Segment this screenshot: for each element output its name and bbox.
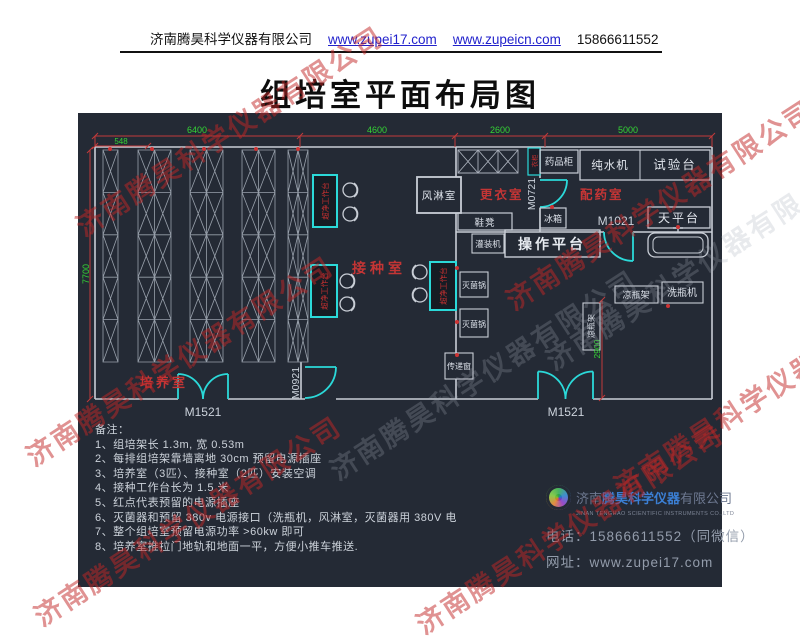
- note-item-1: 1、组培架长 1.3m, 宽 0.53m: [95, 438, 525, 453]
- shoe-bench-label: 鞋凳: [474, 217, 495, 229]
- medicine-cabinet: 药品柜: [540, 150, 578, 173]
- clean-bench-label: 超净工作台: [319, 272, 329, 310]
- door-m1021: [604, 232, 633, 261]
- note-item-7: 7、整个组培室预留电源功率 >60kw 即可: [95, 525, 525, 540]
- bottle-rack-label: 凉瓶架: [622, 289, 649, 300]
- dim-5000: 5000: [618, 125, 638, 135]
- test-bench-label: 试验台: [653, 157, 697, 172]
- filling-machine: 灌装机: [472, 234, 504, 253]
- sterilizer-label: 灭菌锅: [462, 280, 486, 290]
- dim-7700: 7700: [81, 264, 91, 284]
- fridge-label: 冰箱: [544, 213, 562, 224]
- door-m0721: [540, 180, 567, 207]
- wardrobe-label: 衣柜: [530, 154, 539, 168]
- header-link-zupeicn[interactable]: www.zupeicn.com: [453, 32, 561, 47]
- sterilizer-1: 灭菌锅: [460, 272, 488, 297]
- door-label-m1521-left: M1521: [185, 405, 222, 419]
- note-item-8: 8、培养室推拉门地轨和地面一平，方便小推车推送.: [95, 540, 525, 555]
- page: 济南腾昊科学仪器有限公司 www.zupei17.com www.zupeicn…: [0, 0, 800, 600]
- door-m1521-right: [538, 372, 593, 400]
- footer-company-prefix: 济南: [576, 491, 602, 506]
- footer-phone-value: 15866611552（同微信）: [590, 529, 755, 544]
- fridge: 冰箱: [540, 208, 566, 228]
- dim-548: 548: [114, 137, 128, 146]
- door-label-m1021: M1021: [598, 214, 635, 228]
- footer-phone-label: 电话：: [546, 529, 590, 544]
- bottle-washer: 洗瓶机: [662, 282, 703, 303]
- notes-title: 备注：: [95, 423, 525, 438]
- shoe-bench: 鞋凳: [458, 213, 512, 230]
- footer-web-line: 网址：www.zupei17.com: [546, 551, 716, 571]
- footer-company-brand: 腾昊科学仪器: [602, 491, 680, 506]
- company-logo-icon: [546, 485, 571, 510]
- footer-company-name: 济南腾昊科学仪器有限公司: [576, 488, 732, 507]
- footer: 济南腾昊科学仪器有限公司 JINAN TENGHAO SCIENTIFIC IN…: [546, 485, 716, 571]
- culture-racks: [103, 150, 308, 362]
- door-label-m0921: M0921: [290, 367, 302, 399]
- pure-water-label: 纯水机: [591, 158, 629, 172]
- note-item-6: 6、灭菌器和预留 380v 电源接口（洗瓶机，风淋室，灭菌器用 380V 电: [95, 511, 525, 526]
- header-phone: 15866611552: [577, 32, 659, 47]
- bottle-rack-horizontal: 凉瓶架: [615, 286, 658, 303]
- page-title: 组培室平面布局图: [0, 70, 800, 115]
- dim-6400: 6400: [187, 125, 207, 135]
- operation-platform: 操作平台: [505, 230, 600, 257]
- footer-web-label: 网址：: [546, 555, 590, 570]
- air-shower-label: 风淋室: [422, 189, 457, 202]
- rack-lines: [103, 150, 308, 362]
- room-label-culture: 培养室: [140, 375, 188, 390]
- footer-company-suffix: 有限公司: [680, 491, 732, 506]
- header-company: 济南腾昊科学仪器有限公司: [150, 28, 312, 48]
- air-shower: 风淋室: [417, 177, 461, 213]
- clean-bench-label: 超净工作台: [438, 267, 448, 305]
- notes: 备注： 1、组培架长 1.3m, 宽 0.53m 2、每排组培架靠墙离地 30c…: [95, 423, 525, 554]
- clean-bench-3: 超净工作台: [430, 262, 456, 310]
- footer-phone-line: 电话：15866611552（同微信）: [546, 525, 716, 545]
- dim-4600: 4600: [367, 125, 387, 135]
- header-link-zupei17[interactable]: www.zupei17.com: [328, 32, 437, 47]
- dim-2600: 2600: [490, 125, 510, 135]
- bottle-rack-label: 凉瓶架: [586, 314, 596, 338]
- door-label-m0721: M0721: [526, 178, 538, 210]
- clean-bench-label: 超净工作台: [320, 182, 330, 220]
- doors: [178, 180, 633, 399]
- transfer-window-label: 传递窗: [447, 361, 471, 371]
- sterilizer-label: 灭菌锅: [462, 319, 486, 329]
- note-item-5: 5、红点代表预留的电源插座: [95, 496, 525, 511]
- operation-platform-label: 操作平台: [518, 236, 586, 252]
- room-label-changing: 更衣室: [480, 187, 524, 202]
- footer-company-en: JINAN TENGHAO SCIENTIFIC INSTRUMENTS CO.…: [576, 511, 716, 517]
- note-item-4: 4、接种工作台长为 1.5 米: [95, 481, 525, 496]
- note-item-2: 2、每排组培架靠墙离地 30cm 预留电源插座: [95, 452, 525, 467]
- header-divider: [120, 51, 662, 53]
- stools: [340, 183, 427, 311]
- cad-canvas: 风淋室 超净工作台 超净工作台 超净工作台: [78, 113, 722, 587]
- filling-machine-label: 灌装机: [475, 239, 501, 249]
- dim-2900: 2900: [592, 339, 602, 358]
- locker-row: [458, 150, 518, 173]
- room-label-inoculation: 接种室: [352, 260, 406, 276]
- sink: [648, 228, 708, 257]
- balance-table: 天平台: [648, 207, 710, 228]
- door-m0921: [305, 367, 336, 398]
- door-label-m1521-right: M1521: [548, 405, 585, 419]
- sterilizer-2: 灭菌锅: [460, 309, 488, 337]
- transfer-window: 传递窗: [445, 353, 473, 379]
- top-bench: 纯水机 试验台: [580, 150, 710, 180]
- floor-plan: 风淋室 超净工作台 超净工作台 超净工作台: [78, 113, 722, 433]
- bottle-washer-label: 洗瓶机: [667, 286, 697, 299]
- medicine-cabinet-label: 药品柜: [545, 156, 574, 168]
- note-item-3: 3、培养室（3匹）、接种室（2匹）安装空调: [95, 467, 525, 482]
- clean-bench-2: 超净工作台: [311, 265, 337, 317]
- footer-website-value: www.zupei17.com: [590, 555, 714, 570]
- header: 济南腾昊科学仪器有限公司 www.zupei17.com www.zupeicn…: [150, 28, 690, 48]
- room-label-dispensing: 配药室: [580, 187, 624, 202]
- clean-bench-1: 超净工作台: [313, 175, 337, 227]
- balance-table-label: 天平台: [658, 210, 700, 225]
- wardrobe: 衣柜: [528, 148, 540, 175]
